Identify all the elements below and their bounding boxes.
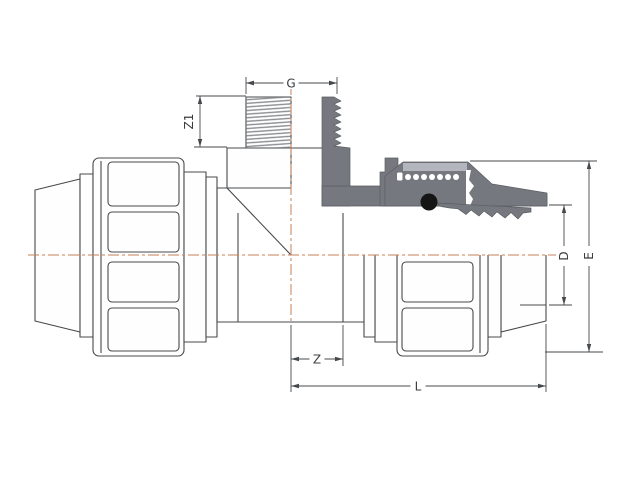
left-nut-window — [108, 212, 179, 252]
o-ring — [421, 194, 438, 211]
dim-label-g: G — [286, 76, 295, 90]
right-nut-window — [402, 262, 473, 302]
technical-drawing-canvas: G Z1 E D Z L — [0, 0, 640, 480]
left-nut-window — [108, 308, 179, 351]
dim-label-e: E — [582, 252, 596, 260]
dim-label-z1: Z1 — [182, 114, 196, 130]
male-thread-hatching — [247, 98, 291, 148]
tee-body — [217, 97, 368, 322]
branch-flange — [227, 148, 291, 188]
right-nut-window — [402, 308, 473, 351]
section-view — [322, 97, 547, 219]
dim-label-d: D — [557, 251, 571, 260]
dimension-z1: Z1 — [182, 96, 246, 147]
dim-label-z: Z — [313, 352, 321, 366]
nut-highlight-band — [403, 163, 467, 171]
cone-transition-edge — [227, 188, 291, 255]
left-nut-window — [108, 262, 179, 302]
dimension-z: Z — [291, 325, 343, 366]
left-collar — [184, 172, 206, 342]
dim-label-l: L — [415, 379, 422, 393]
left-compression-nut — [35, 158, 217, 356]
left-step — [206, 177, 217, 337]
left-nut-window — [108, 162, 179, 206]
